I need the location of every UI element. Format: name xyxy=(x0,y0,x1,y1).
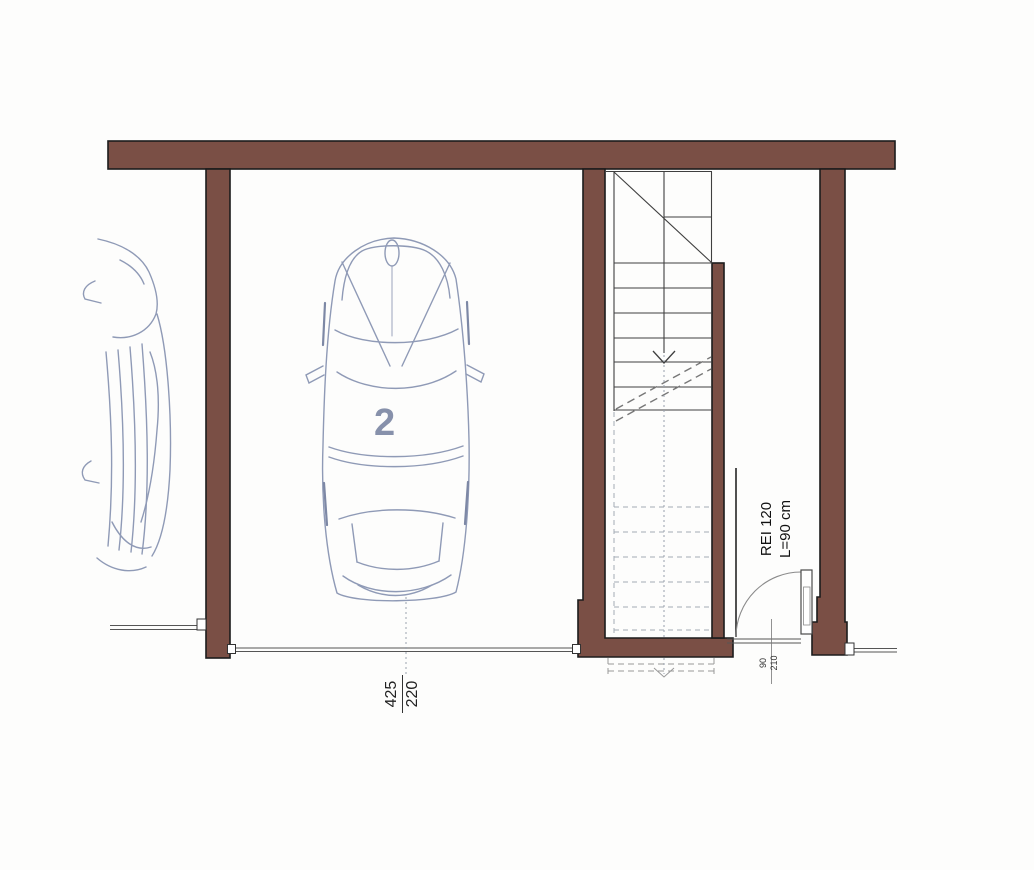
door-dim-height: 210 xyxy=(769,643,780,683)
car-rear-side xyxy=(352,524,357,562)
car-hatch-stroke xyxy=(106,352,112,546)
car-windshield-top xyxy=(335,329,458,343)
stair-continuation-dashed xyxy=(608,658,714,677)
stairwell-inner-wall xyxy=(712,263,724,638)
fire-rating-text: REI 120 xyxy=(757,492,776,566)
fire-door-rating-label: REI 120 L=90 cm xyxy=(757,492,797,566)
car-side-outline xyxy=(152,314,170,556)
stair-lower-steps-dashed xyxy=(614,412,712,635)
car-mirror xyxy=(82,461,99,483)
jamb-marker xyxy=(197,619,206,630)
car-door-line xyxy=(329,456,463,467)
floorplan-page: 2 425 220 REI 120 L=90 cm 90 210 xyxy=(0,0,1034,870)
door-dimension-label: 90 210 xyxy=(758,643,780,683)
car-sketch-left xyxy=(82,239,170,571)
car-mirror-left xyxy=(306,366,324,383)
car-wheel xyxy=(323,303,325,345)
car-wheel xyxy=(467,302,469,344)
car-lower-curve xyxy=(97,558,146,571)
floorplan-svg xyxy=(0,0,1034,870)
car-windshield-bottom xyxy=(337,371,456,388)
top-wall xyxy=(108,141,895,169)
car-rear-side xyxy=(439,523,443,561)
car-front-inner-line xyxy=(342,246,450,300)
car-mirror-right xyxy=(466,365,484,382)
car-body-outline xyxy=(323,238,470,601)
car-rear-window xyxy=(339,510,455,519)
jamb-marker xyxy=(845,643,854,655)
fire-door-width-text: L=90 cm xyxy=(776,492,795,566)
car-a-pillar-left xyxy=(342,262,390,366)
door-dim-width: 90 xyxy=(758,643,769,683)
car-detail-line xyxy=(120,260,144,284)
stairwell-left-and-bottom-wall xyxy=(578,169,733,657)
dimension-height-value: 220 xyxy=(403,675,423,713)
car-hatch-stroke xyxy=(118,350,123,550)
car-trunk-line xyxy=(357,561,439,569)
jamb-marker xyxy=(228,645,236,654)
car-top-curve xyxy=(98,239,157,338)
car-a-pillar-right xyxy=(402,263,450,366)
car-mirror xyxy=(83,281,101,303)
car-bumper xyxy=(343,575,451,592)
car-hood-emblem xyxy=(385,240,399,266)
parking-space-number: 2 xyxy=(374,404,395,442)
car-hatch-stroke xyxy=(130,347,135,552)
car-inner-curve xyxy=(141,352,158,522)
dimension-width-value: 425 xyxy=(382,675,403,713)
jamb-marker xyxy=(573,645,581,654)
walls xyxy=(108,141,895,658)
right-wall xyxy=(812,169,847,655)
staircase xyxy=(606,172,712,412)
garage-opening-dimension: 425 220 xyxy=(382,675,426,713)
car-bumper-inner xyxy=(358,585,432,596)
door-swing-arc xyxy=(736,572,801,637)
car-door-line xyxy=(329,446,463,457)
car-hatch-stroke xyxy=(142,344,147,554)
left-divider-wall xyxy=(206,169,230,658)
